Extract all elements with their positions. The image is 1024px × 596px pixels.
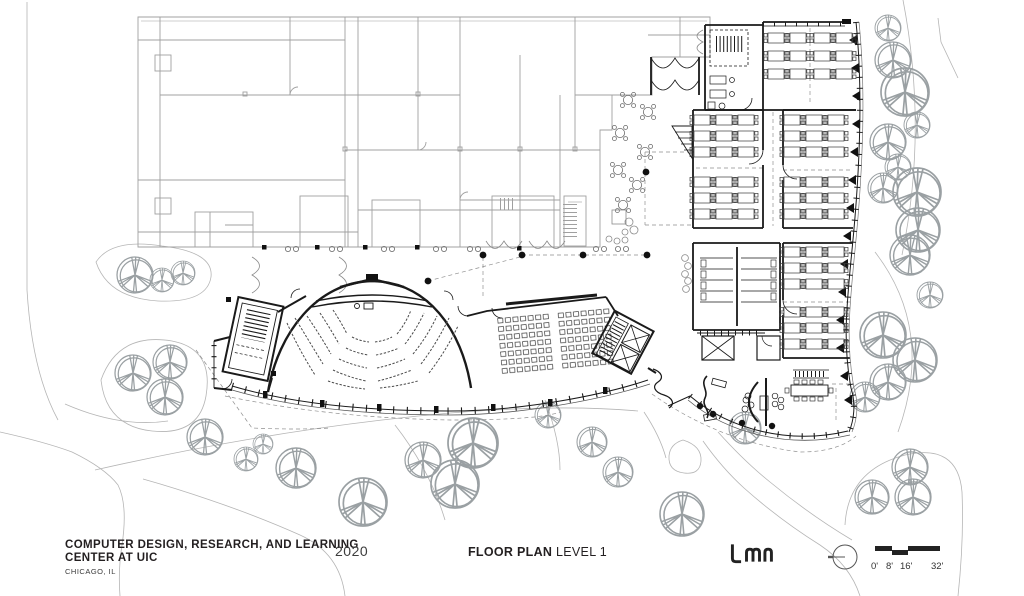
scale-label-32: 32' (931, 561, 944, 572)
courtyard-tables (606, 92, 656, 244)
dashed-reference-lines (196, 28, 856, 452)
glass-connector (651, 57, 699, 95)
floor-plan-drawing: 0' 8' 16' 32' (0, 0, 1024, 596)
restrooms (693, 243, 780, 333)
long-table (791, 385, 828, 396)
trees (115, 15, 943, 536)
project-title-line1: COMPUTER DESIGN, RESEARCH, AND LEARNING (65, 539, 359, 552)
east-wing (672, 19, 863, 432)
flat-classroom (458, 295, 618, 376)
scale-label-0: 0' (871, 561, 878, 572)
title-block: COMPUTER DESIGN, RESEARCH, AND LEARNING … (65, 539, 359, 576)
scale-label-16: 16' (900, 561, 913, 572)
southeast-glass-wall (653, 369, 850, 440)
auditorium (268, 274, 471, 392)
office-room (708, 30, 752, 110)
classroom-seat-grid (497, 308, 615, 376)
project-location: CHICAGO, IL (65, 567, 359, 576)
auditorium-dome-wall (268, 281, 471, 392)
sheet-title: FLOOR PLAN LEVEL 1 (468, 545, 607, 559)
east-facade (846, 22, 863, 432)
accordion-wall (653, 369, 672, 408)
lmn-logo (728, 540, 778, 566)
site-paths (0, 0, 963, 596)
stage-edge (312, 295, 432, 307)
scale-bar: 0' 8' 16' 32' (871, 546, 944, 572)
project-year: 2020 (335, 543, 368, 559)
bollards-and-shrubs (252, 30, 703, 293)
auditorium-seating (287, 310, 458, 389)
scale-label-8: 8' (886, 561, 893, 572)
teardrop-planter (669, 440, 701, 473)
west-stair-tower (214, 296, 306, 392)
project-title-line2: CENTER AT UIC (65, 552, 359, 565)
sheet-title-regular: LEVEL 1 (556, 545, 607, 559)
sheet-title-bold: FLOOR PLAN (468, 545, 552, 559)
column-dots (425, 169, 651, 285)
north-arrow-icon (828, 545, 857, 569)
south-curtain-wall (232, 380, 650, 415)
floor-plan-sheet: 0' 8' 16' 32' COMPUTER DESIGN, RESEARCH,… (0, 0, 1024, 596)
